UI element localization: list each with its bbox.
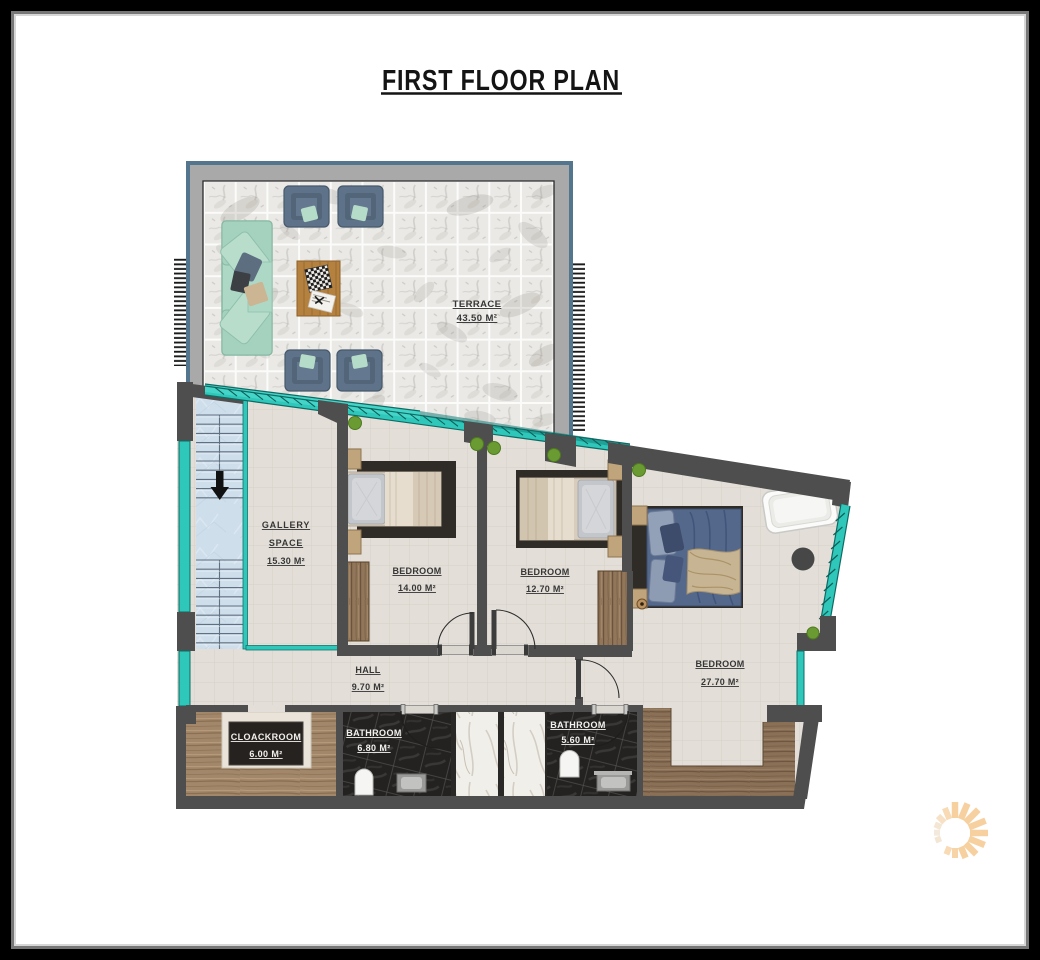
svg-text:9.70 M²: 9.70 M²: [352, 682, 385, 692]
svg-text:BATHROOM: BATHROOM: [550, 720, 606, 730]
svg-text:14.00 M²: 14.00 M²: [398, 583, 436, 593]
svg-text:SPACE: SPACE: [269, 538, 303, 548]
svg-text:TERRACE: TERRACE: [453, 299, 502, 310]
svg-text:27.70 M²: 27.70 M²: [701, 677, 739, 687]
svg-text:6.00 M²: 6.00 M²: [249, 749, 282, 759]
svg-text:6.80 M²: 6.80 M²: [357, 743, 390, 753]
svg-text:GALLERY: GALLERY: [262, 520, 310, 530]
svg-text:CLOACKROOM: CLOACKROOM: [231, 732, 302, 742]
svg-text:HALL: HALL: [355, 665, 380, 675]
svg-text:BATHROOM: BATHROOM: [346, 728, 402, 738]
svg-text:BEDROOM: BEDROOM: [695, 659, 744, 669]
svg-text:5.60 M²: 5.60 M²: [561, 735, 594, 745]
svg-text:12.70 M²: 12.70 M²: [526, 584, 564, 594]
svg-text:43.50 M²: 43.50 M²: [457, 313, 498, 324]
svg-text:BEDROOM: BEDROOM: [520, 567, 569, 577]
svg-text:BEDROOM: BEDROOM: [392, 566, 441, 576]
svg-text:15.30 M²: 15.30 M²: [267, 556, 305, 566]
